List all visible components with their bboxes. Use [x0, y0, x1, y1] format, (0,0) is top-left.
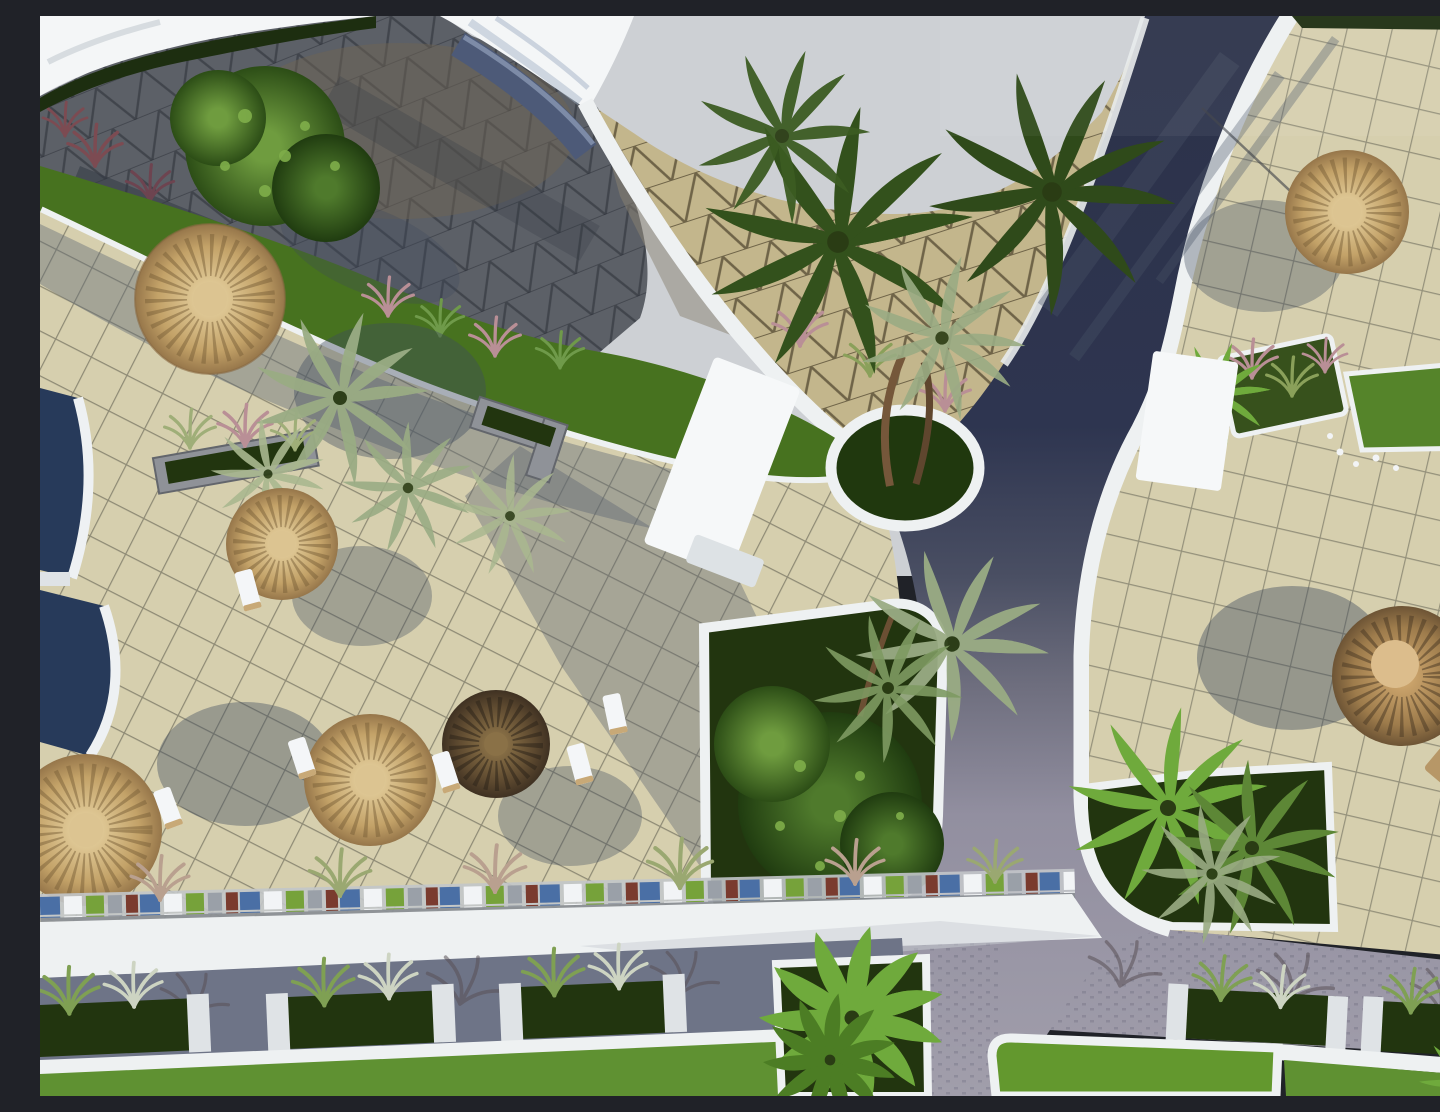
mini-lawn	[1346, 362, 1440, 450]
straw-umbrella	[1285, 150, 1409, 274]
aerial-resort-render: Aerial 3D rendering of a resort pool ter…	[40, 16, 1440, 1096]
straw-umbrella	[135, 224, 285, 374]
center-lawn	[992, 1038, 1278, 1096]
pool-step	[40, 572, 70, 586]
kiosk-roof-right	[1135, 351, 1238, 492]
straw-umbrella	[304, 714, 436, 846]
light-wash	[940, 16, 1440, 136]
render-canvas	[40, 16, 1440, 1096]
